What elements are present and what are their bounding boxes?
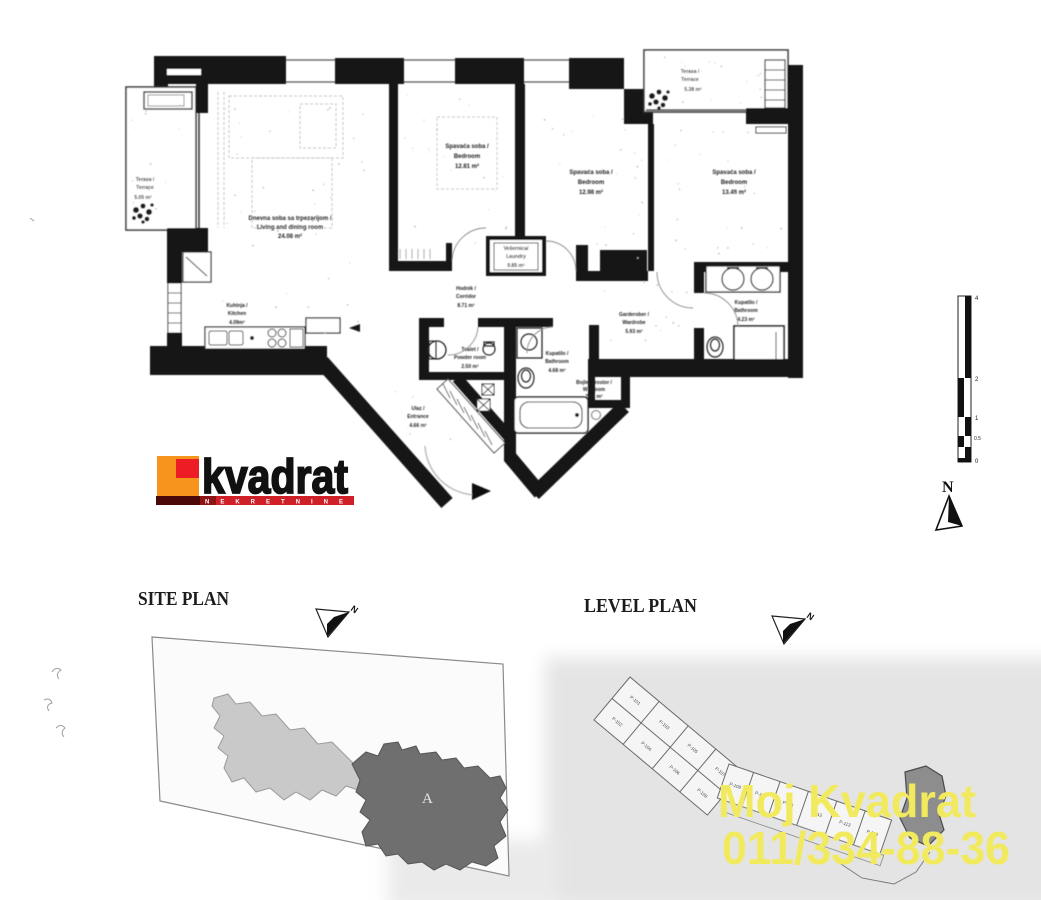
svg-text:Spavaća soba /: Spavaća soba /	[712, 170, 756, 176]
svg-text:Bedroom: Bedroom	[721, 180, 747, 186]
svg-text:Dnevna soba sa trpezarijom /: Dnevna soba sa trpezarijom /	[248, 216, 331, 222]
svg-text:Kitchen: Kitchen	[228, 311, 246, 317]
svg-text:24.08 m²: 24.08 m²	[278, 233, 302, 240]
svg-text:Spavaća soba /: Spavaća soba /	[569, 170, 613, 176]
svg-text:2.50 m²: 2.50 m²	[461, 364, 479, 370]
svg-text:12.98 m²: 12.98 m²	[579, 189, 603, 196]
svg-text:0.5: 0.5	[974, 436, 981, 442]
svg-text:Living and dining room: Living and dining room	[257, 225, 323, 231]
svg-text:Terrace: Terrace	[136, 185, 154, 191]
svg-text:4.23 m²: 4.23 m²	[737, 317, 755, 323]
svg-text:5.38 m²: 5.38 m²	[684, 87, 702, 93]
svg-text:Terasa /: Terasa /	[136, 177, 155, 183]
svg-text:8.71 m²: 8.71 m²	[457, 303, 475, 309]
svg-text:Bathroom: Bathroom	[734, 308, 758, 314]
svg-text:Garderober /: Garderober /	[619, 312, 650, 318]
svg-text:Kupatilo /: Kupatilo /	[546, 351, 569, 357]
svg-text:Bedroom: Bedroom	[454, 154, 480, 160]
svg-text:WH room: WH room	[583, 387, 606, 393]
svg-text:Kuhinja /: Kuhinja /	[226, 303, 248, 309]
svg-text:12.81 m²: 12.81 m²	[455, 163, 479, 170]
svg-text:Ulaz /: Ulaz /	[411, 406, 425, 412]
svg-text:Entrance: Entrance	[407, 414, 429, 420]
svg-text:Laundry: Laundry	[506, 254, 526, 260]
svg-text:Corridor: Corridor	[456, 294, 476, 300]
svg-text:Bedroom: Bedroom	[578, 180, 604, 186]
svg-text:LEVEL PLAN: LEVEL PLAN	[584, 595, 697, 617]
svg-text:5.05 m²: 5.05 m²	[134, 195, 152, 201]
svg-text:Moj Kvadrat: Moj Kvadrat	[718, 775, 976, 827]
svg-text:NEKRETNINE: NEKRETNINE	[205, 500, 354, 506]
svg-text:Bojler prostor /: Bojler prostor /	[576, 380, 612, 386]
svg-text:N: N	[942, 479, 954, 496]
svg-text:Terrace: Terrace	[681, 77, 699, 83]
svg-text:A: A	[422, 791, 433, 807]
svg-text:0.85 m²: 0.85 m²	[507, 263, 525, 269]
svg-text:Vešernica/: Vešernica/	[504, 246, 529, 252]
svg-text:Wardrobe: Wardrobe	[622, 320, 645, 326]
svg-text:5.93 m²: 5.93 m²	[625, 329, 643, 335]
svg-text:Hodnik /: Hodnik /	[456, 286, 476, 292]
svg-text:Kupatilo /: Kupatilo /	[735, 300, 758, 306]
svg-text:4.09m²: 4.09m²	[229, 320, 245, 326]
svg-text:Bathroom: Bathroom	[545, 359, 569, 365]
svg-text:Powder room: Powder room	[454, 355, 487, 361]
svg-text:Spavaća soba /: Spavaća soba /	[445, 144, 489, 150]
svg-text:4.66 m²: 4.66 m²	[409, 423, 427, 429]
svg-text:13.48 m²: 13.48 m²	[722, 189, 746, 196]
svg-text:SITE PLAN: SITE PLAN	[138, 588, 229, 610]
svg-text:011/334-88-36: 011/334-88-36	[722, 822, 1010, 874]
svg-text:Terasa /: Terasa /	[681, 69, 700, 75]
svg-text:4.68 m²: 4.68 m²	[548, 368, 566, 374]
